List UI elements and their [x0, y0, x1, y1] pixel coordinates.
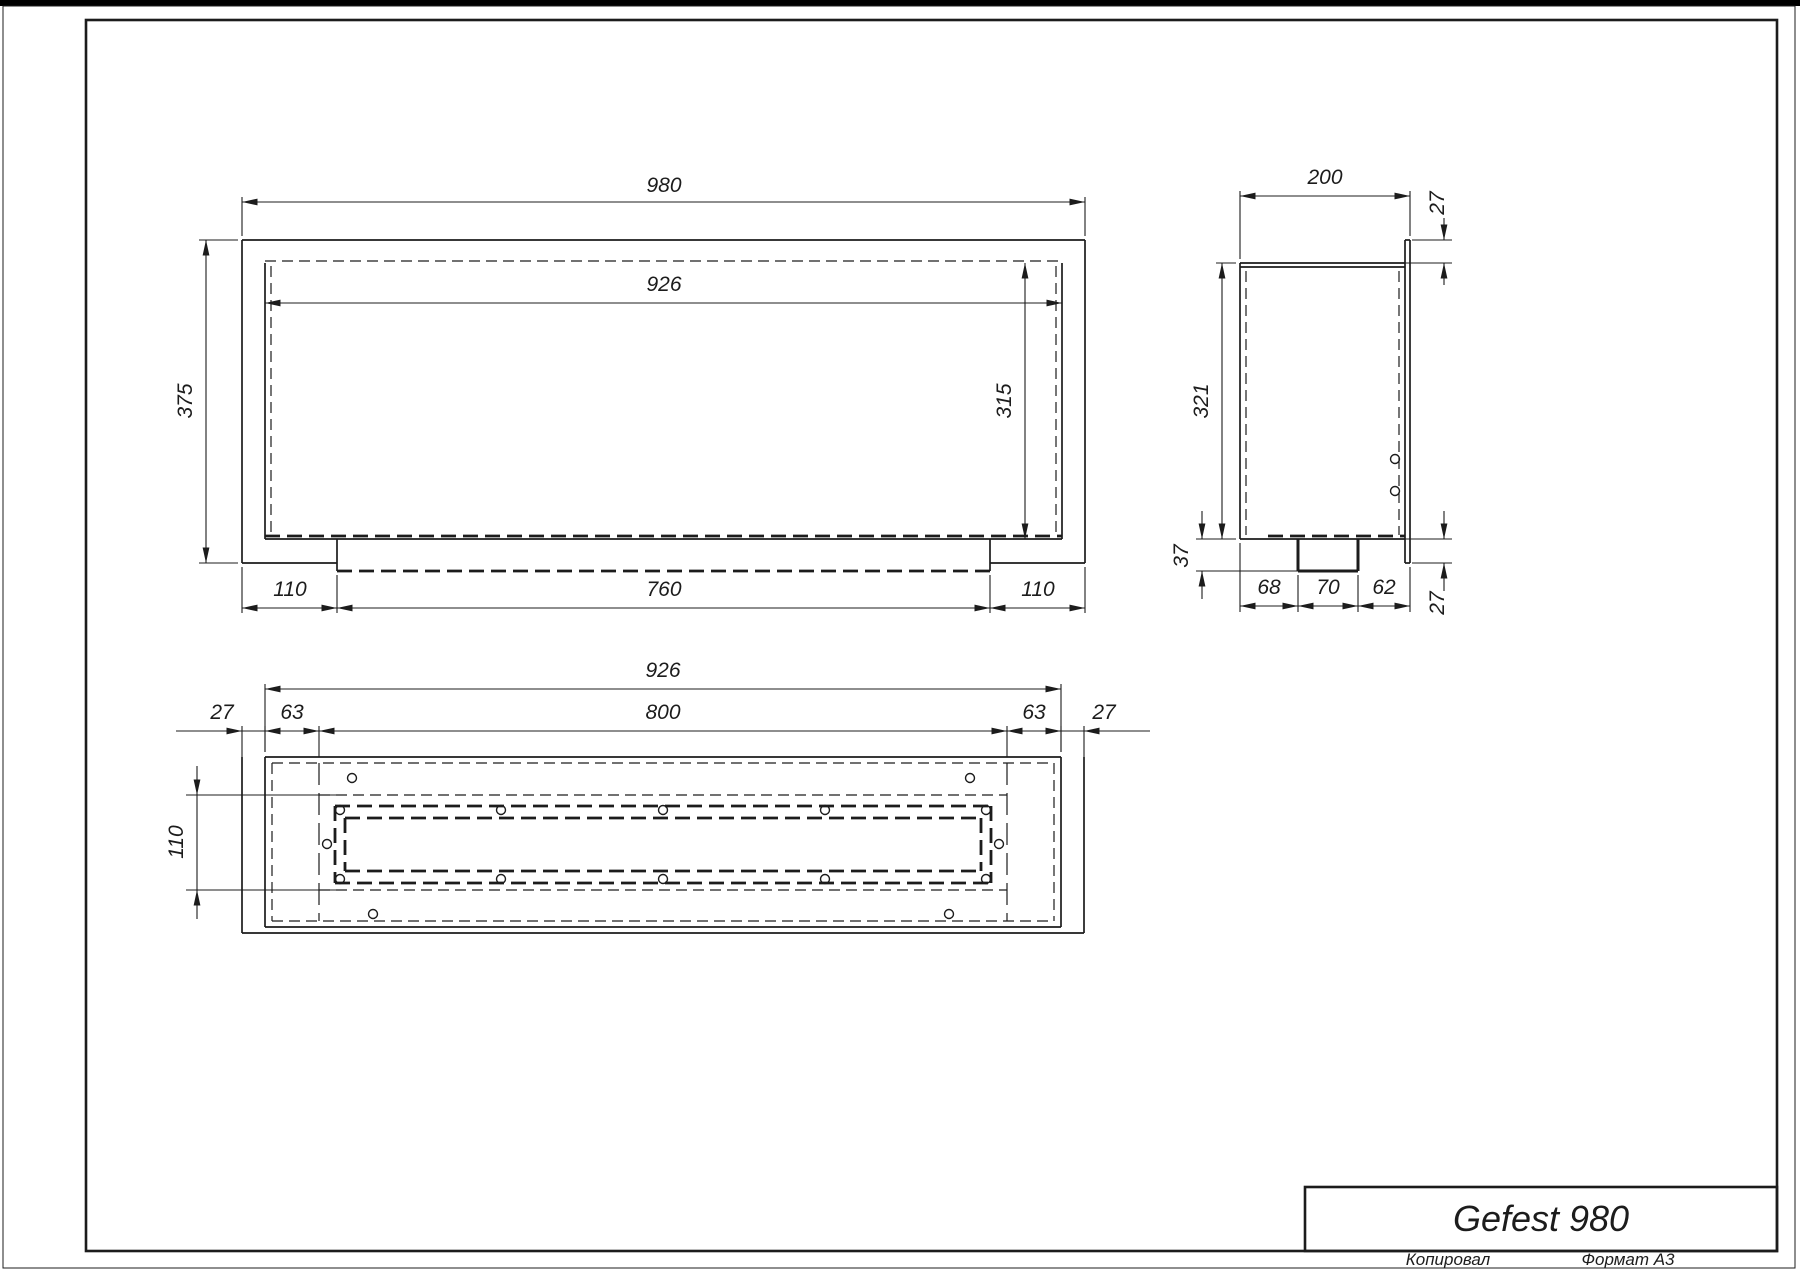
dim-label-27-top: 27	[1426, 190, 1449, 216]
dim-label-37: 37	[1170, 543, 1193, 568]
copied-label: Копировал	[1406, 1250, 1491, 1269]
drawing-title: Gefest 980	[1453, 1198, 1629, 1239]
dim-label-800: 800	[645, 701, 680, 724]
title-block: Gefest 980 Копировал Формат А3	[1305, 1187, 1777, 1269]
top-bar	[0, 0, 1800, 6]
side-dim-bottom-row: 68 70 62	[1240, 543, 1410, 612]
side-dim-depth: 200	[1240, 166, 1410, 259]
front-view-hidden-lines	[265, 261, 1062, 571]
dim-label-321: 321	[1190, 383, 1213, 418]
dim-label-110-slot: 110	[165, 825, 188, 859]
front-dim-bottom-row: 110 760 110	[242, 567, 1085, 613]
front-dim-overall-width: 980	[242, 174, 1085, 236]
side-dim-height: 321	[1190, 263, 1236, 539]
dim-label-110-left: 110	[273, 578, 307, 601]
bottom-dim-slot-height: 110	[165, 766, 340, 919]
side-view-holes	[1391, 455, 1400, 496]
sheet-frame	[0, 0, 1800, 1268]
dim-label-760: 760	[646, 578, 681, 601]
dim-label-63-right: 63	[1022, 701, 1046, 724]
dim-label-27-left: 27	[209, 701, 235, 724]
dim-label-70: 70	[1316, 576, 1340, 599]
format-label: Формат А3	[1581, 1250, 1675, 1269]
side-dim-flange-bottom: 27	[1405, 511, 1452, 616]
side-hole-upper	[1391, 455, 1400, 464]
dim-label-63-left: 63	[280, 701, 304, 724]
dim-label-62: 62	[1372, 576, 1396, 599]
inner-frame	[86, 20, 1777, 1251]
dim-label-27-right: 27	[1091, 701, 1117, 724]
dim-label-27-bottom: 27	[1426, 590, 1449, 616]
dim-label-375: 375	[174, 383, 197, 418]
side-view-hidden-lines	[1246, 271, 1405, 536]
dim-label-926-bottom: 926	[645, 659, 680, 682]
side-view-outline	[1240, 240, 1410, 571]
bottom-view-hidden-lines	[272, 763, 1054, 921]
dim-label-315: 315	[993, 383, 1016, 418]
dim-label-200: 200	[1306, 166, 1342, 189]
side-view: 200 27 321 37	[1170, 166, 1452, 616]
drawing-canvas: 980 926 375 315 110 760 110	[0, 0, 1800, 1273]
bottom-view-outline	[242, 757, 1084, 933]
front-dim-opening-height: 315	[993, 263, 1025, 539]
front-dim-opening-width: 926	[265, 273, 1062, 303]
bottom-view: 926 27 63 800 63 27	[165, 659, 1150, 933]
dim-label-980: 980	[646, 174, 681, 197]
dim-label-926-front: 926	[646, 273, 681, 296]
bottom-dim-row: 27 63 800 63 27	[176, 701, 1150, 757]
dim-label-68: 68	[1257, 576, 1281, 599]
front-view: 980 926 375 315 110 760 110	[174, 174, 1085, 613]
side-hole-lower	[1391, 487, 1400, 496]
dim-label-110-right: 110	[1021, 578, 1055, 601]
side-dim-flange-top: 27	[1405, 190, 1452, 285]
front-dim-overall-height: 375	[174, 240, 238, 563]
drawing-sheet: 980 926 375 315 110 760 110	[0, 0, 1800, 1273]
outer-border	[3, 6, 1795, 1268]
